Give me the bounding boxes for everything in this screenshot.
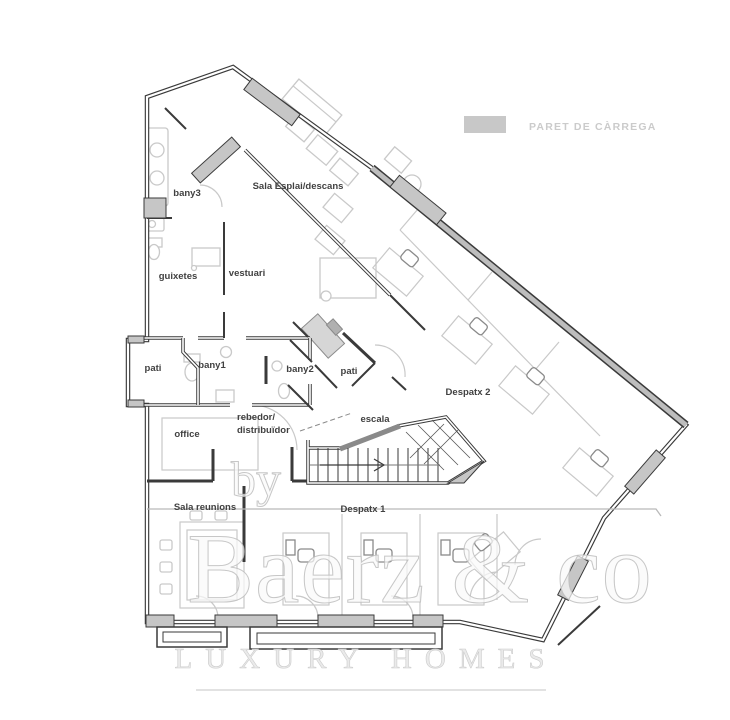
room-label-escala: escala [360,414,390,425]
watermark: by Baerz & co LUXURY HOMES [175,451,653,690]
room-label-rebedor-line1: rebedor/ [237,412,275,423]
stair-direction-arrow [320,459,384,471]
room-label-vestuari: vestuari [229,268,265,279]
room-label-sala-reunions: Sala reunions [174,502,236,513]
room-label-bany2: bany2 [286,364,313,375]
room-label-office: office [174,429,199,440]
room-label-bany3: bany3 [173,188,200,199]
legend: PARET DE CÀRREGA [464,116,657,133]
room-label-rebedor-line2: distribuïdor [237,425,290,436]
room-label-despatx2: Despatx 2 [446,387,491,398]
room-label-pati-west: pati [145,363,162,374]
watermark-tagline: LUXURY HOMES [175,643,558,675]
legend-label: PARET DE CÀRREGA [529,120,657,133]
legend-swatch [464,116,506,133]
floor-plan-page: bany3 Sala Esplai/descans guixetes vestu… [0,0,730,720]
floor-plan-svg: bany3 Sala Esplai/descans guixetes vestu… [0,0,730,720]
staircase [308,417,484,483]
watermark-by: by [231,451,281,507]
watermark-brand: Baerz & co [187,513,652,624]
room-label-sala-esplai: Sala Esplai/descans [253,181,344,192]
room-label-bany1: bany1 [198,360,226,371]
room-label-guixetes: guixetes [159,271,198,282]
room-label-pati-center: pati [341,366,358,377]
